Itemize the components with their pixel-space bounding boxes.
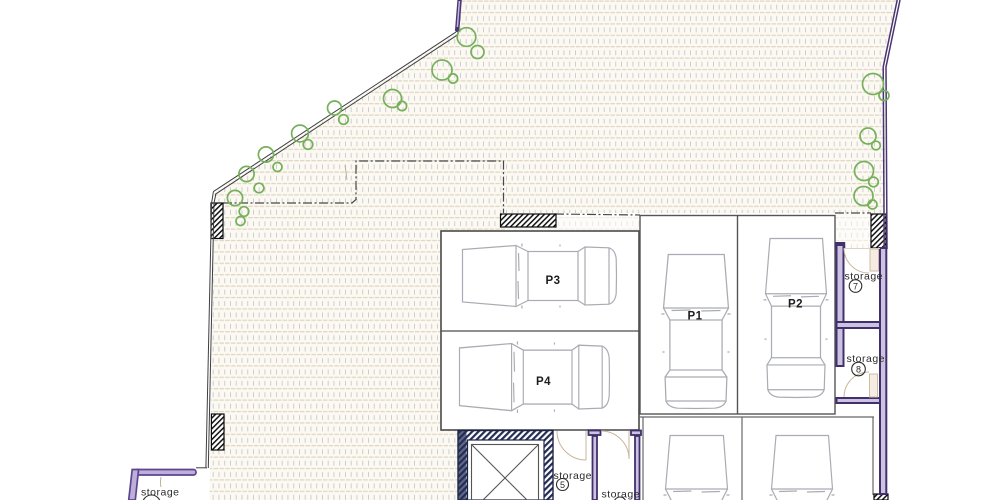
svg-text:8: 8 [856, 365, 861, 375]
svg-text:P4: P4 [536, 376, 551, 388]
svg-text:storage: storage [845, 271, 884, 283]
svg-text:7: 7 [853, 282, 858, 292]
svg-text:P1: P1 [688, 311, 703, 323]
svg-text:storage: storage [602, 489, 641, 500]
svg-text:storage: storage [847, 353, 886, 365]
svg-text:P2: P2 [788, 299, 803, 311]
svg-text:5: 5 [560, 480, 565, 490]
svg-text:P3: P3 [546, 275, 561, 287]
